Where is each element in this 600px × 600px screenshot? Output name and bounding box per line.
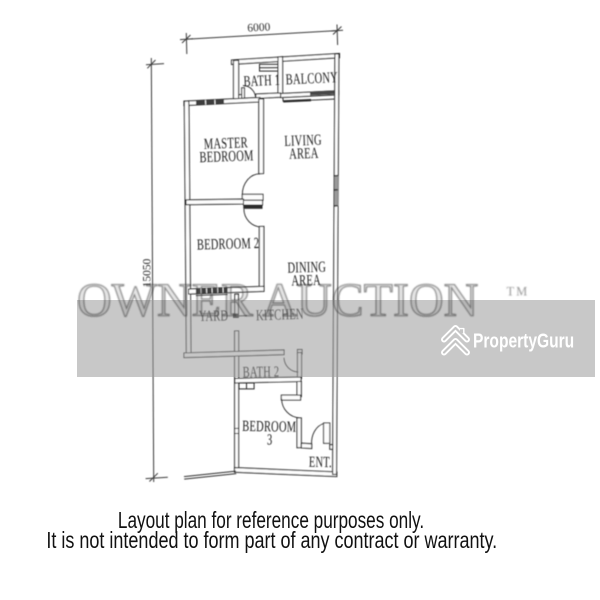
svg-text:BATH 1: BATH 1 (243, 71, 280, 90)
svg-text:BEDROOM: BEDROOM (199, 146, 254, 165)
svg-text:AREA: AREA (289, 144, 319, 163)
svg-text:PropertyGuru: PropertyGuru (473, 329, 574, 352)
svg-text:BALCONY: BALCONY (285, 68, 338, 88)
svg-text:BEDROOM 2: BEDROOM 2 (197, 234, 260, 253)
svg-text:ENT.: ENT. (309, 453, 332, 471)
svg-text:TM: TM (507, 285, 530, 299)
svg-text:OWNER AUCTION: OWNER AUCTION (77, 274, 478, 327)
svg-text:3: 3 (267, 430, 273, 448)
svg-text:It is not intended to form par: It is not intended to form part of any c… (46, 528, 497, 554)
svg-text:6000: 6000 (247, 21, 271, 34)
